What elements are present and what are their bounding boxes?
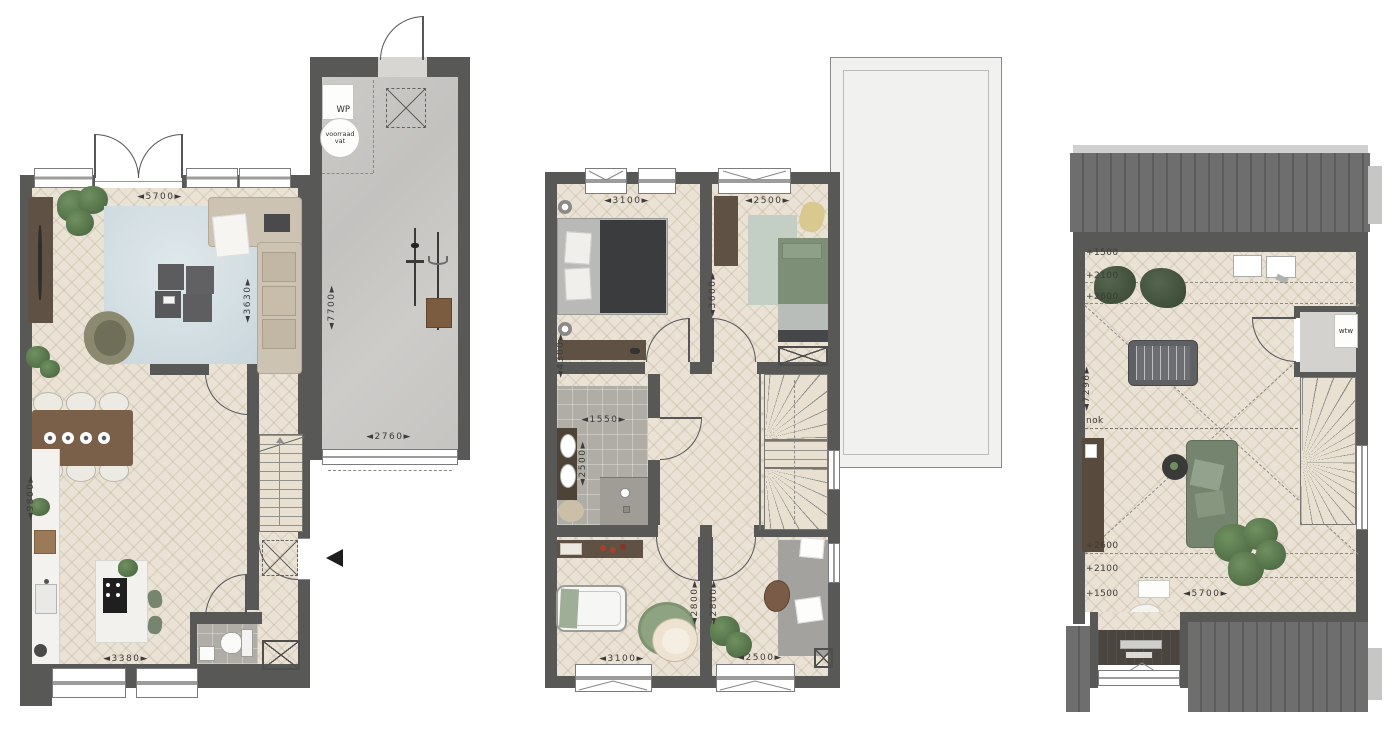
height-label-1500-top: +1500 [1086,248,1126,259]
garage-door-arc [380,16,424,60]
dim-garage-depth: ◄7700► [326,277,338,337]
roof-gutter-top [1073,145,1368,153]
dormer-window [1098,670,1180,686]
roof-plane-rear-right [1188,622,1368,712]
dim-kitchen-width: ◄3380► [91,653,161,665]
toilet-cistern [241,629,253,657]
ridge-label: nok [1086,416,1126,427]
roof-plane-front [1070,153,1370,232]
dormer-wall-right [1180,612,1188,688]
living-front-window-3 [239,168,291,188]
dim-bedroom3-width: ◄3100► [587,653,657,665]
dim-bedroom1-width: ◄3100► [592,195,662,207]
shoes [630,348,640,354]
dim-living-depth: ◄3630► [242,270,254,330]
rear-corner-pier [20,688,52,706]
toilet-bowl [220,632,242,654]
storage-vessel: voorraad vat [320,118,360,158]
plate-2 [62,432,74,444]
foosball-field [1136,346,1190,380]
height-label-1500-bottom: +1500 [1086,589,1126,600]
staircase-attic [1300,377,1356,525]
toilet-left-wall [190,612,197,664]
stair-stringer-line [759,374,761,530]
window-opening-symbol-3 [578,680,648,691]
heat-pump-label: WP [323,85,353,115]
garage-left-wall [310,57,322,460]
bedroom2-door-leaf [712,318,714,362]
dim-bedroom2-depth: ◄3600► [707,264,719,324]
wtw-unit: wtw [1334,314,1358,348]
bicycle-crate [426,298,452,328]
installation-zone-dashed-v [373,80,374,173]
kitchen-sink [35,584,57,614]
garage-door-opening [378,57,427,77]
sideboard-tray [560,543,582,555]
side-table-plant [1170,462,1178,470]
rear-window-2 [136,668,198,698]
coffee-table-1 [158,264,184,290]
bicycle-2-handlebar [428,256,448,265]
wall-lamp-1 [558,200,572,214]
installation-zone-dashed-h [322,173,373,174]
cabinet-lamp [1085,444,1097,458]
hall-wall-stub [150,364,209,375]
french-door-arc-right [138,134,182,178]
dormer-floor [1098,612,1180,630]
bed-pillow-2 [564,267,592,300]
toilet-door-leaf [245,574,247,618]
bedroom3-chair-seat [662,628,690,654]
cooktop-burners [106,583,110,587]
sofa-cushion-3 [262,319,296,349]
bed-single-pillow [782,243,822,259]
dim-attic-width: ◄5700► [1171,588,1241,600]
dim-total-depth: ◄9800► [25,467,37,527]
staircase-ff-bottom-winders [764,468,828,530]
ff-window-stairs [828,450,840,490]
roof-edge-tab-bottom [1368,648,1382,700]
bath-mat [558,500,584,522]
staircase-up-arrow [276,437,284,443]
tv-screen [38,225,42,300]
bicycle-1-handlebar [406,260,424,263]
ff-window-bedroom4-side [828,543,840,583]
dim-bedroom4-depth: ◄2800► [708,572,720,632]
sofa-books [264,214,290,232]
dormer-window-symbol [1128,662,1156,672]
sofa-pillow-2 [1194,490,1225,518]
window-opening-symbol-2 [722,170,787,181]
bed-pillow-1 [564,231,592,265]
window-opening-symbol-1 [588,170,624,181]
staircase-ff-walkline [794,380,795,524]
bedroom4-cupboard [814,648,833,668]
living-front-window-1 [34,168,93,188]
garage-threshold-dashed-line [328,470,452,471]
living-front-window-2 [186,168,238,188]
shower-glass [600,477,648,478]
french-door-arc-left [95,134,139,178]
red-flowers [600,545,606,551]
papers-2 [799,537,825,559]
ff-lower-wall-b [700,525,712,537]
attic-right-wall [1356,232,1368,624]
ff-window-hall-top [638,168,676,194]
dim-bedroom2-width: ◄2500► [733,195,803,207]
height-label-2600-top: +2600 [1086,292,1126,303]
french-door-leaf-right [181,134,183,178]
heat-pump-unit: WP [322,84,354,120]
dim-garage-width: ◄2760► [354,431,424,443]
attic-left-wall [1073,232,1085,624]
wash-basin-1 [560,434,576,458]
coffee-table-2 [186,266,214,294]
french-door-leaf-left [94,134,96,178]
ff-mid-wall-a [557,362,645,374]
wtw-room-wall-top [1294,306,1356,312]
bath-towel [559,589,579,629]
bathroom-wall-lower [648,460,660,525]
kitchen-bin [34,644,47,657]
wtw-door-leaf [1252,317,1296,319]
dim-attic-depth: ◄7296► [1081,358,1093,418]
desk-keyboard [1126,652,1152,658]
shower-head [620,488,630,498]
skylight-1 [1233,255,1262,277]
attic-white-table [1138,580,1170,598]
staircase-walkline [279,440,280,526]
roof-rear-edge-wall [1188,612,1368,622]
dormer-wall-left [1090,612,1098,688]
bedroom1-door-leaf [688,318,690,362]
height-label-2100-top: +2100 [1086,271,1126,282]
dim-bathroom-width: ◄1550► [569,414,639,426]
staircase-ff-top-winders [764,374,828,440]
sofa-cushion-2 [262,286,296,316]
dim-living-width: ◄5700► [125,191,195,203]
garage-rear-window [322,449,458,465]
roof-plane-rear-left [1066,626,1090,712]
dim-bedroom3-depth: ◄2800► [689,572,701,632]
bed-single-sheet [778,304,828,330]
staircase-ff-straight [764,440,828,468]
height-label-2100-bottom: +2100 [1086,564,1126,575]
bicycle-1 [414,228,416,306]
dim-bedroom1-depth: ◄4300► [555,325,567,385]
lounge-chair-seat [94,320,126,356]
bathroom-wall-upper [648,374,660,418]
ff-right-wall [828,172,840,688]
shower-floor [600,478,648,525]
toilet-basin [199,646,215,661]
desk-monitor [1120,640,1162,649]
plate-4 [98,432,110,444]
plate-3 [80,432,92,444]
shower-drain [623,506,630,513]
meter-cupboard [262,640,300,670]
cutting-board [34,530,56,554]
bedroom2-chest [778,346,828,366]
bed-single-footboard [778,330,828,342]
hall-door-leaf [247,373,249,415]
floor-plan-sheet: WP voorraad vat [0,0,1400,732]
ff-lower-wall-a [557,525,658,537]
roof-hatch-dashed [386,88,426,128]
garage-door-leaf [422,16,424,60]
height-line-2600-top [1085,303,1353,304]
french-door-threshold [95,181,182,182]
bicycle-1-saddle [411,243,419,248]
bed-double-duvet [600,220,666,313]
entrance-arrow [326,549,343,567]
dim-bathroom-depth: ◄2500► [577,433,589,493]
game-console [163,296,175,304]
garage-flat-roof [830,57,1002,468]
wash-basin-2 [560,464,576,488]
dim-bedroom4-width: ◄2500► [725,652,795,664]
coffee-table-4 [183,294,212,322]
rear-window-1 [52,668,126,698]
bathroom-door-leaf [660,417,702,419]
garage-right-wall [458,57,470,460]
roof-edge-tab-top [1368,166,1382,224]
window-opening-symbol-4 [719,680,792,691]
papers-1 [794,596,823,623]
ff-mid-wall-b [690,362,712,374]
attic-side-window [1356,445,1368,530]
sofa-blanket [212,213,250,257]
plate-1 [44,432,56,444]
height-label-2600-bottom: +2600 [1086,541,1126,552]
entrance-door-opening [298,538,310,580]
sofa-cushion-1 [262,252,296,282]
kitchen-faucet [44,579,49,584]
